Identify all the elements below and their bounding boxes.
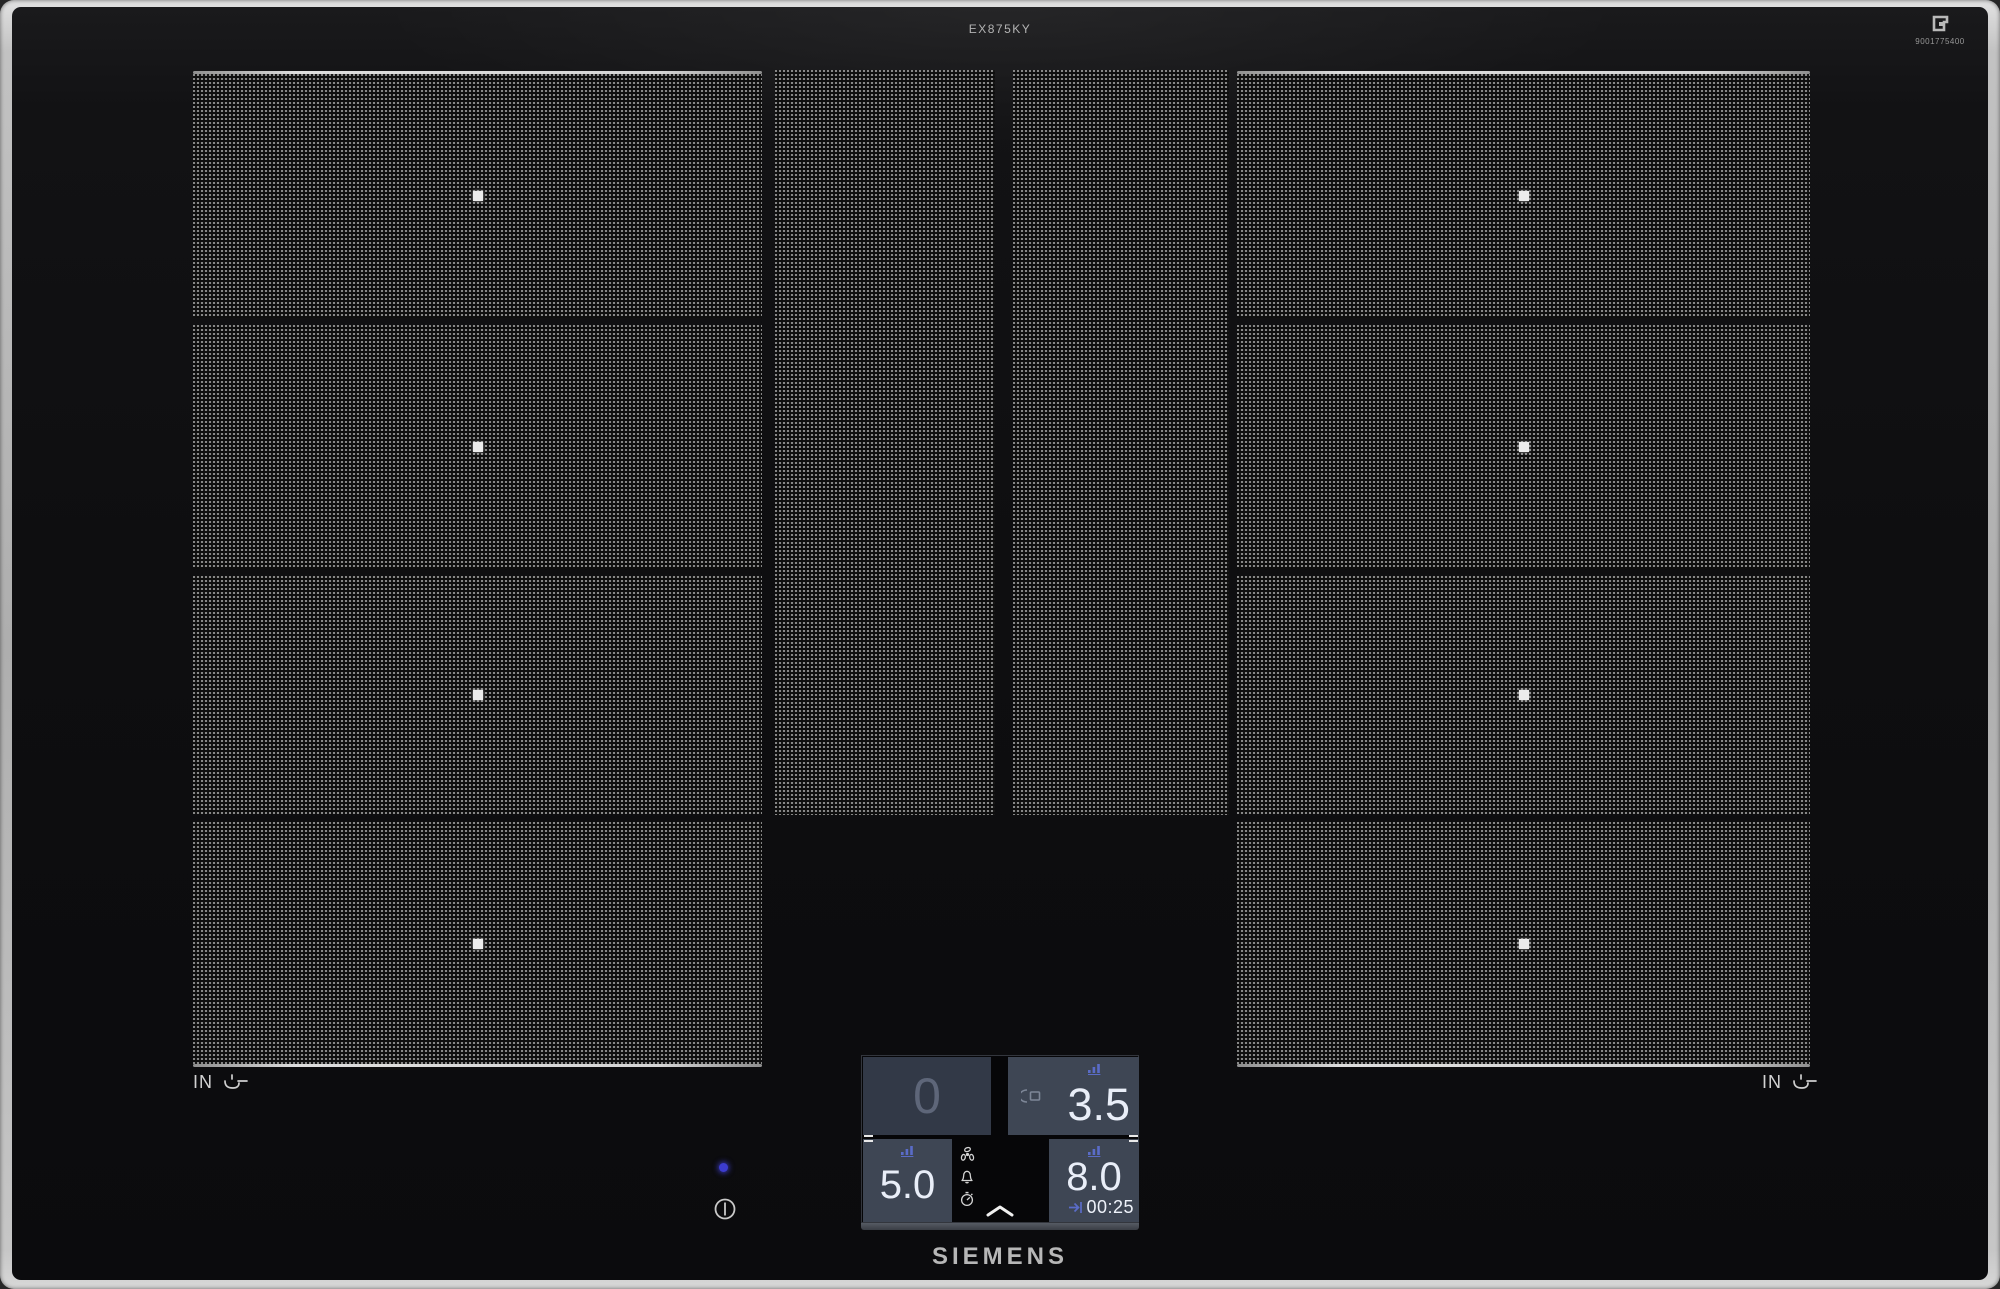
timer-value: 00:25 xyxy=(1086,1197,1134,1218)
model-label: EX875KY xyxy=(0,22,2000,36)
zone-right-seg4 xyxy=(1237,822,1810,1066)
zone-edge-line xyxy=(1237,1064,1810,1067)
pan-indicator-right: IN xyxy=(1762,1072,1817,1093)
flex-frame-icon xyxy=(1931,14,1950,33)
zone-marker xyxy=(473,939,483,949)
zone-left-seg3 xyxy=(193,576,762,814)
zone-marker xyxy=(1519,442,1529,452)
zone-marker xyxy=(473,690,483,700)
corner-mark: 9001775400 xyxy=(1903,14,1977,46)
zone-right-seg2 xyxy=(1237,325,1810,569)
drag-handle-left[interactable] xyxy=(864,1135,873,1142)
panel-zone-top-left[interactable]: 0 xyxy=(863,1057,991,1135)
zone-marker xyxy=(473,442,483,452)
zone-marker xyxy=(473,191,483,201)
power-value: 0 xyxy=(913,1071,941,1121)
drag-handle-right[interactable] xyxy=(1129,1135,1138,1142)
cooktop: EX875KY 9001775400 IN IN xyxy=(0,0,2000,1289)
pan-indicator-label: IN xyxy=(193,1072,213,1093)
fan-icon[interactable] xyxy=(959,1146,976,1163)
part-number: 9001775400 xyxy=(1903,37,1977,46)
power-button[interactable] xyxy=(713,1197,737,1226)
pan-sensor-icon xyxy=(222,1074,248,1091)
zone-right-seg1 xyxy=(1237,74,1810,318)
pan-indicator-left: IN xyxy=(193,1072,248,1093)
zone-strip-2 xyxy=(1013,70,1229,815)
panel-zone-bottom-right[interactable]: 8.0 00:25 xyxy=(1049,1139,1139,1222)
power-led xyxy=(719,1163,728,1172)
zone-edge-line xyxy=(193,1064,762,1067)
panel-zone-top-right[interactable]: 3.5 xyxy=(1008,1057,1139,1135)
pan-bridge-icon xyxy=(1021,1089,1043,1103)
zone-marker xyxy=(1519,939,1529,949)
power-level-bars-icon xyxy=(901,1145,914,1157)
zone-marker xyxy=(1519,191,1529,201)
power-value: 8.0 xyxy=(1049,1157,1139,1197)
power-value: 3.5 xyxy=(1067,1082,1130,1127)
stopwatch-icon[interactable] xyxy=(959,1191,975,1207)
zone-strip-1 xyxy=(775,70,995,815)
chevron-up-icon[interactable] xyxy=(985,1204,1015,1223)
zone-left-seg4 xyxy=(193,822,762,1066)
control-panel: 0 3.5 5.0 8.0 xyxy=(861,1055,1139,1223)
zone-marker xyxy=(1519,690,1529,700)
power-level-bars-icon xyxy=(1088,1063,1101,1075)
timer-arrow-icon xyxy=(1068,1201,1084,1214)
pan-indicator-label: IN xyxy=(1762,1072,1782,1093)
power-icon xyxy=(713,1197,737,1221)
timer: 00:25 xyxy=(1068,1197,1134,1218)
panel-bezel xyxy=(861,1223,1139,1230)
power-value: 5.0 xyxy=(863,1165,952,1205)
zone-left-seg1 xyxy=(193,74,762,318)
panel-zone-bottom-left[interactable]: 5.0 xyxy=(863,1139,952,1222)
zone-right-seg3 xyxy=(1237,576,1810,814)
zone-left-seg2 xyxy=(193,325,762,569)
bell-icon[interactable] xyxy=(959,1169,975,1185)
siemens-logo: SIEMENS xyxy=(0,1243,2000,1271)
pan-sensor-icon xyxy=(1791,1074,1817,1091)
